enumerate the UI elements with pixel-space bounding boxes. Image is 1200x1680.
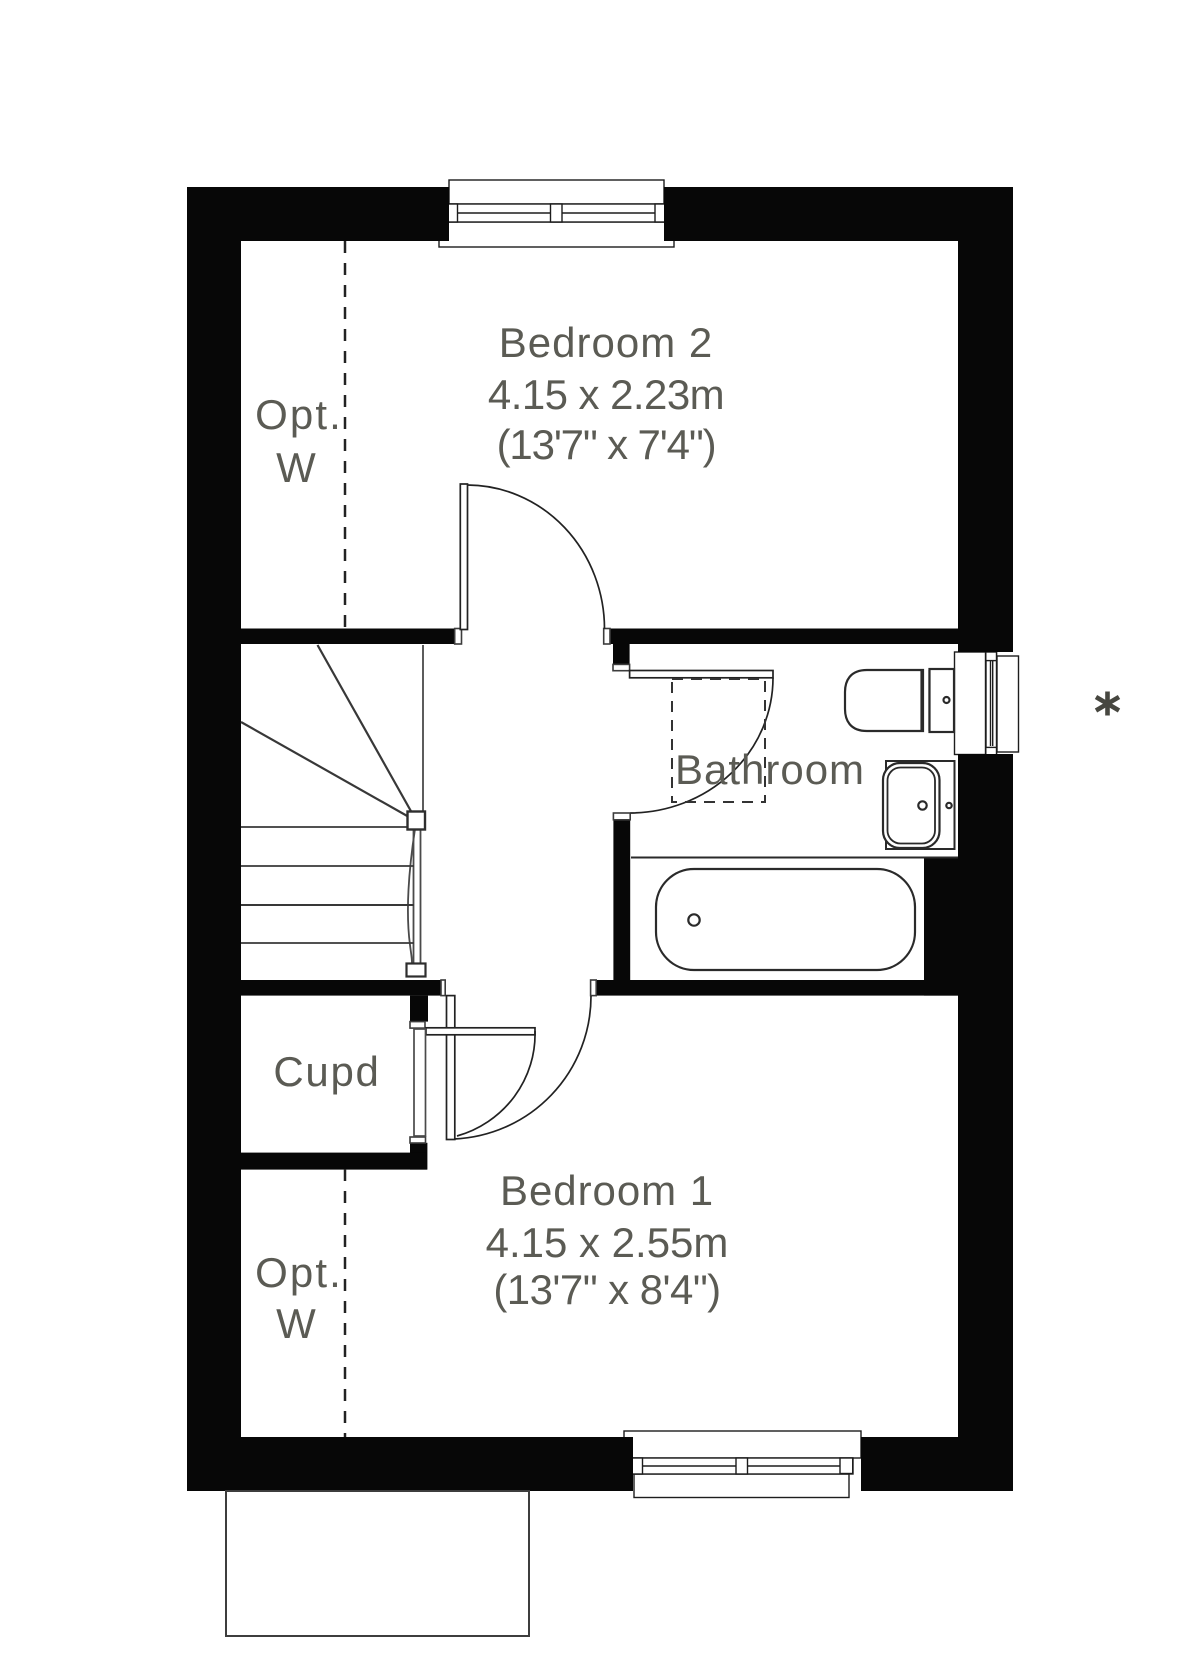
- svg-text:Bedroom 1: Bedroom 1: [500, 1167, 714, 1214]
- svg-text:4.15 x 2.23m: 4.15 x 2.23m: [488, 371, 724, 418]
- svg-text:W: W: [276, 444, 316, 491]
- svg-text:(13'7" x 7'4"): (13'7" x 7'4"): [497, 421, 716, 468]
- svg-text:Opt.: Opt.: [255, 391, 343, 438]
- svg-text:Bedroom 2: Bedroom 2: [499, 319, 713, 366]
- svg-text:Bathroom: Bathroom: [675, 746, 865, 793]
- svg-text:W: W: [276, 1300, 316, 1347]
- svg-text:Cupd: Cupd: [273, 1048, 380, 1095]
- svg-text:(13'7" x 8'4"): (13'7" x 8'4"): [493, 1266, 720, 1313]
- svg-text:Opt.: Opt.: [255, 1249, 343, 1296]
- svg-text:4.15 x 2.55m: 4.15 x 2.55m: [486, 1219, 729, 1266]
